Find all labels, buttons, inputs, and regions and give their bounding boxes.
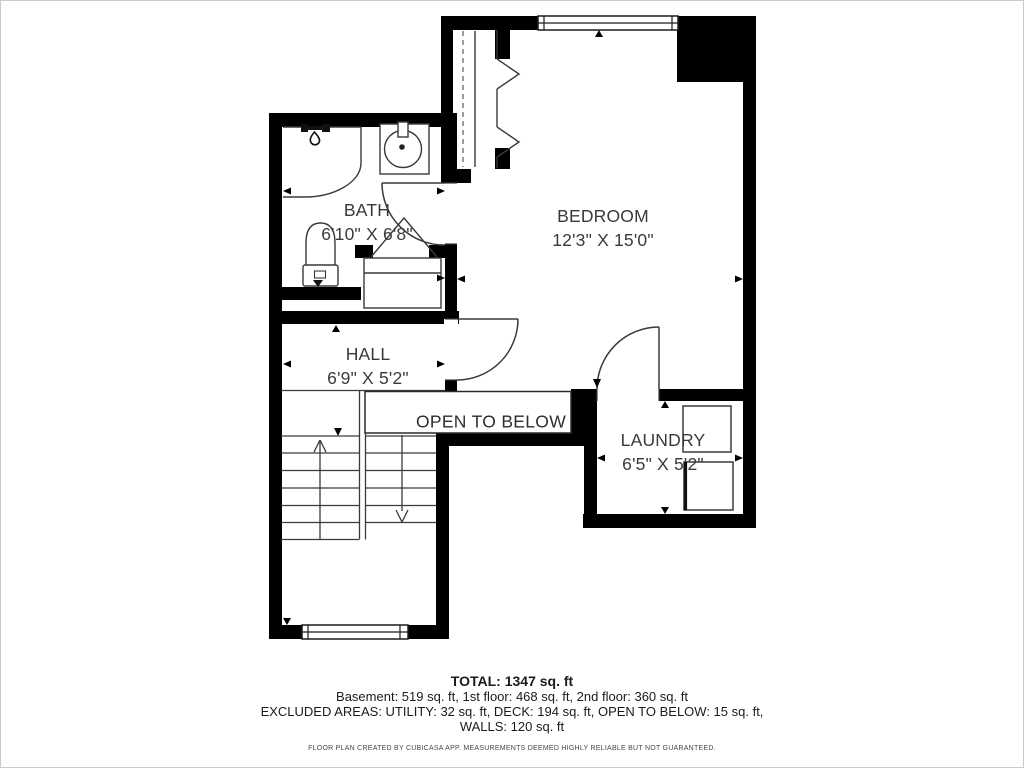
bedroom-closet	[463, 30, 519, 168]
sink-icon	[380, 122, 429, 174]
room-name-hall: HALL	[327, 342, 409, 366]
footer-disclaimer: FLOOR PLAN CREATED BY CUBICASA APP. MEAS…	[1, 745, 1023, 752]
room-name-laundry: LAUNDRY	[621, 428, 706, 452]
room-dims-bath: 6'10" X 6'8"	[321, 222, 413, 246]
floor-plan-drawing	[1, 1, 1024, 768]
bifold-door-icon	[497, 59, 519, 89]
room-label-laundry: LAUNDRY 6'5" X 5'2"	[621, 428, 706, 476]
window-icon	[538, 16, 678, 30]
room-label-bath: BATH 6'10" X 6'8"	[321, 198, 413, 246]
room-dims-laundry: 6'5" X 5'2"	[621, 452, 706, 476]
open-to-below-label: OPEN TO BELOW	[416, 412, 566, 433]
room-label-bedroom: BEDROOM 12'3" X 15'0"	[552, 204, 654, 252]
windows	[302, 16, 678, 639]
door-swing-icon	[457, 319, 518, 380]
door-swing-icon	[593, 327, 659, 389]
shower-icon	[283, 124, 361, 197]
stairs-down-arrow	[396, 435, 408, 522]
room-dims-hall: 6'9" X 5'2"	[327, 366, 409, 390]
summary-floors: Basement: 519 sq. ft, 1st floor: 468 sq.…	[1, 689, 1023, 704]
room-dims-bedroom: 12'3" X 15'0"	[552, 228, 654, 252]
walls	[269, 16, 756, 639]
floor-plan-page: BATH 6'10" X 6'8" BEDROOM 12'3" X 15'0" …	[0, 0, 1024, 768]
summary-excluded: EXCLUDED AREAS: UTILITY: 32 sq. ft, DECK…	[1, 704, 1023, 719]
window-icon	[302, 625, 408, 639]
summary-total: TOTAL: 1347 sq. ft	[1, 673, 1023, 689]
stair-treads-right	[366, 436, 436, 523]
stairs-up-arrow	[314, 440, 326, 539]
summary-walls: WALLS: 120 sq. ft	[1, 719, 1023, 734]
room-label-hall: HALL 6'9" X 5'2"	[327, 342, 409, 390]
room-name-bath: BATH	[321, 198, 413, 222]
room-name-bedroom: BEDROOM	[552, 204, 654, 228]
